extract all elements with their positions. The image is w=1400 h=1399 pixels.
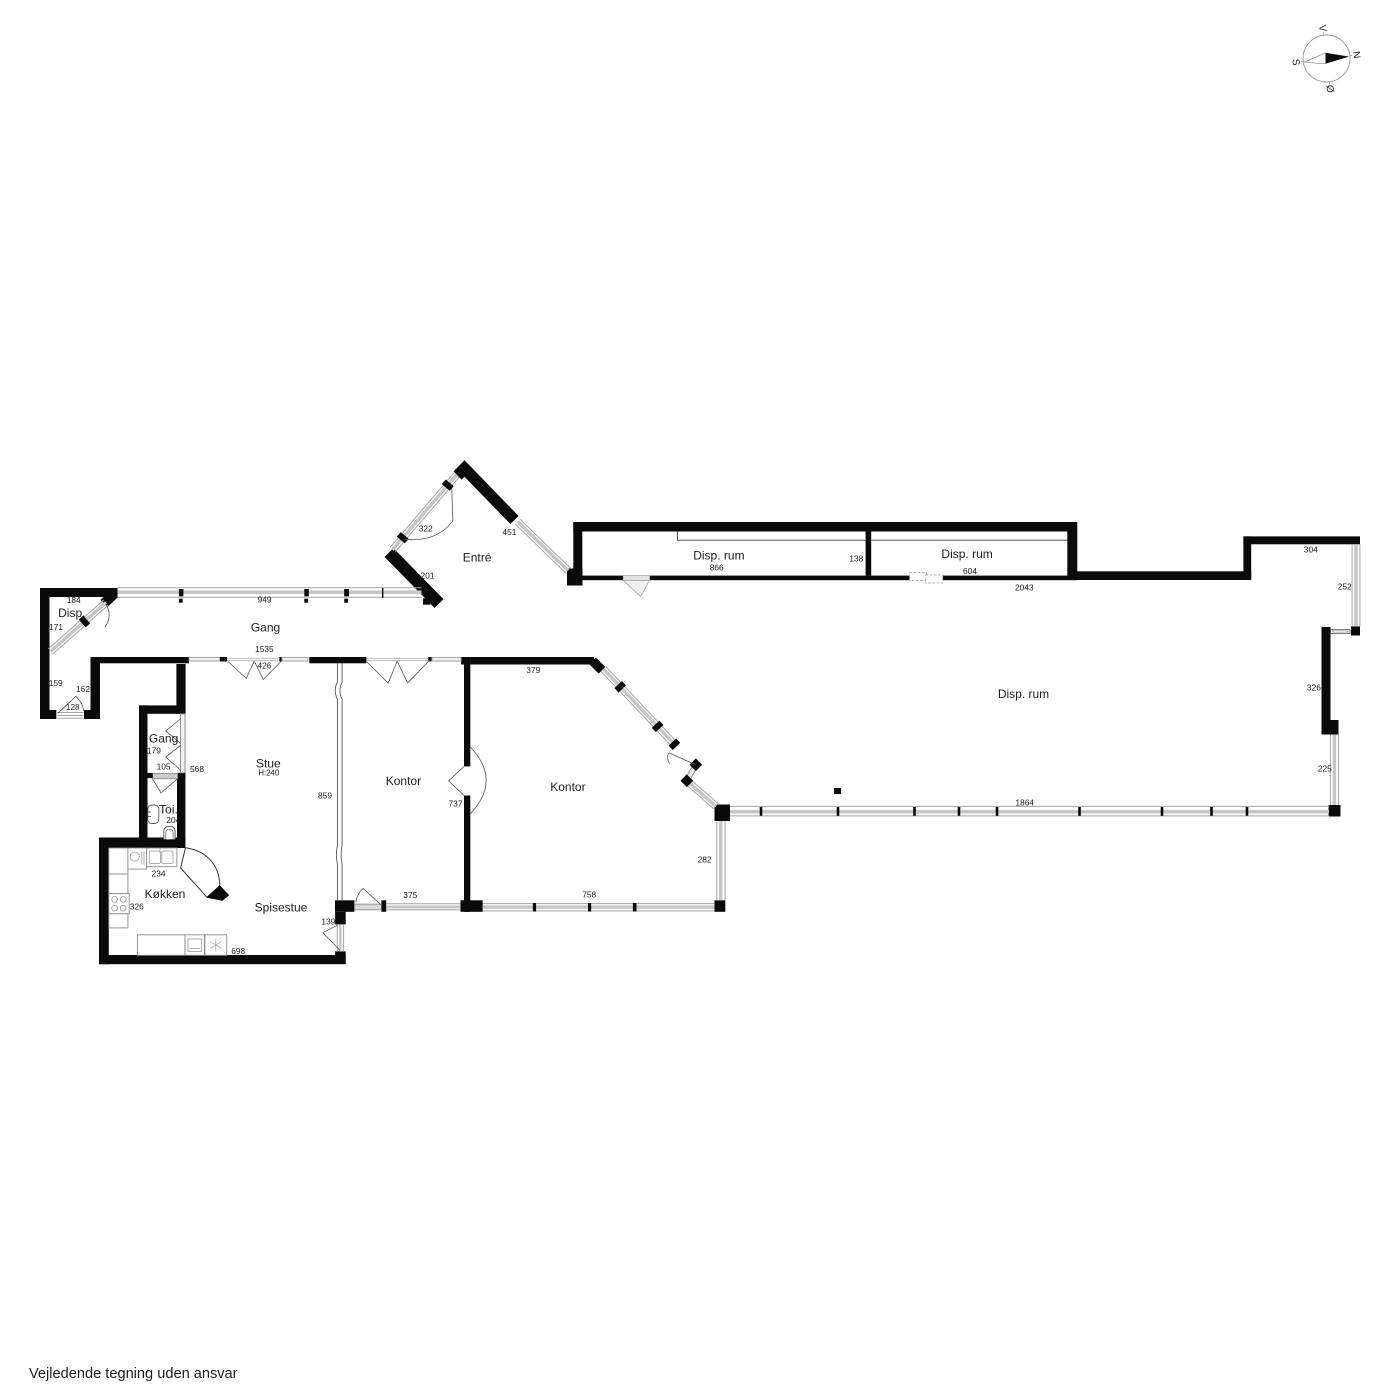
svg-text:866: 866 <box>710 562 724 572</box>
svg-text:Kontor: Kontor <box>386 774 421 788</box>
svg-text:Disp. rum: Disp. rum <box>693 548 744 562</box>
svg-text:138: 138 <box>849 553 863 563</box>
svg-text:1535: 1535 <box>255 644 274 654</box>
svg-text:N: N <box>1350 51 1362 60</box>
svg-text:949: 949 <box>258 595 272 605</box>
svg-text:326: 326 <box>130 901 144 911</box>
svg-text:171: 171 <box>49 622 63 632</box>
svg-text:282: 282 <box>698 854 712 864</box>
svg-text:204: 204 <box>166 815 180 825</box>
svg-text:304: 304 <box>1304 545 1318 555</box>
svg-text:Vejledende tegning uden ansvar: Vejledende tegning uden ansvar <box>29 1366 238 1382</box>
svg-text:105: 105 <box>157 761 171 771</box>
svg-text:H:240: H:240 <box>258 768 279 777</box>
svg-text:451: 451 <box>502 527 516 537</box>
svg-text:252: 252 <box>1338 582 1352 592</box>
svg-text:737: 737 <box>449 799 463 809</box>
svg-text:2043: 2043 <box>1015 583 1034 593</box>
svg-text:201: 201 <box>421 571 435 581</box>
svg-text:604: 604 <box>963 566 977 576</box>
svg-text:Køkken: Køkken <box>145 887 186 901</box>
svg-text:326: 326 <box>1307 682 1321 692</box>
svg-text:Spisestue: Spisestue <box>255 900 308 914</box>
svg-text:Gang: Gang <box>149 731 178 745</box>
svg-text:859: 859 <box>318 791 332 801</box>
svg-text:Kontor: Kontor <box>550 780 585 794</box>
svg-text:379: 379 <box>526 665 540 675</box>
svg-text:159: 159 <box>49 678 63 688</box>
svg-text:Disp. rum: Disp. rum <box>941 547 992 561</box>
svg-text:426: 426 <box>257 660 271 670</box>
svg-text:Entré: Entré <box>463 551 492 565</box>
svg-text:162: 162 <box>76 684 90 694</box>
svg-text:234: 234 <box>152 868 166 878</box>
svg-text:139: 139 <box>321 916 335 926</box>
svg-text:Disp.: Disp. <box>58 606 85 620</box>
svg-text:179: 179 <box>147 745 161 755</box>
svg-text:Gang: Gang <box>251 621 280 635</box>
svg-text:322: 322 <box>419 523 433 533</box>
svg-text:568: 568 <box>190 764 204 774</box>
svg-text:1864: 1864 <box>1015 797 1034 807</box>
svg-text:128: 128 <box>66 702 80 712</box>
svg-text:698: 698 <box>231 946 245 956</box>
svg-text:758: 758 <box>582 890 596 900</box>
svg-text:Disp. rum: Disp. rum <box>998 687 1049 701</box>
svg-text:184: 184 <box>67 595 81 605</box>
svg-text:375: 375 <box>403 890 417 900</box>
svg-text:Ø: Ø <box>1323 84 1335 93</box>
svg-text:225: 225 <box>1318 764 1332 774</box>
